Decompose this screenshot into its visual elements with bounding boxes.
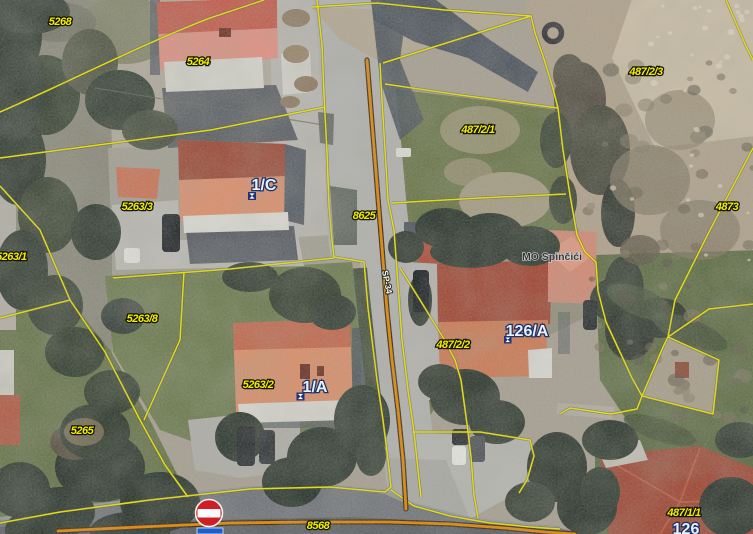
svg-text:487/2/3: 487/2/3 <box>628 66 663 78</box>
svg-text:126/A: 126/A <box>506 323 549 340</box>
svg-text:487/1/1: 487/1/1 <box>666 507 701 519</box>
svg-text:5268: 5268 <box>49 16 73 28</box>
svg-text:5265: 5265 <box>71 425 95 437</box>
svg-text:1/C: 1/C <box>252 177 277 194</box>
svg-text:MO Spinčići: MO Spinčići <box>522 251 582 263</box>
svg-text:8568: 8568 <box>307 520 331 532</box>
svg-text:5263/1: 5263/1 <box>0 251 27 263</box>
svg-text:4873: 4873 <box>715 201 739 213</box>
svg-text:5263/2: 5263/2 <box>243 379 274 391</box>
svg-text:1/A: 1/A <box>303 379 328 396</box>
svg-text:126: 126 <box>673 521 700 534</box>
svg-text:8625: 8625 <box>353 210 377 222</box>
svg-text:5263/3: 5263/3 <box>122 201 153 213</box>
svg-text:487/2/1: 487/2/1 <box>460 124 495 136</box>
svg-text:5264: 5264 <box>187 56 210 68</box>
svg-text:5263/8: 5263/8 <box>127 313 159 325</box>
svg-text:487/2/2: 487/2/2 <box>435 339 470 351</box>
